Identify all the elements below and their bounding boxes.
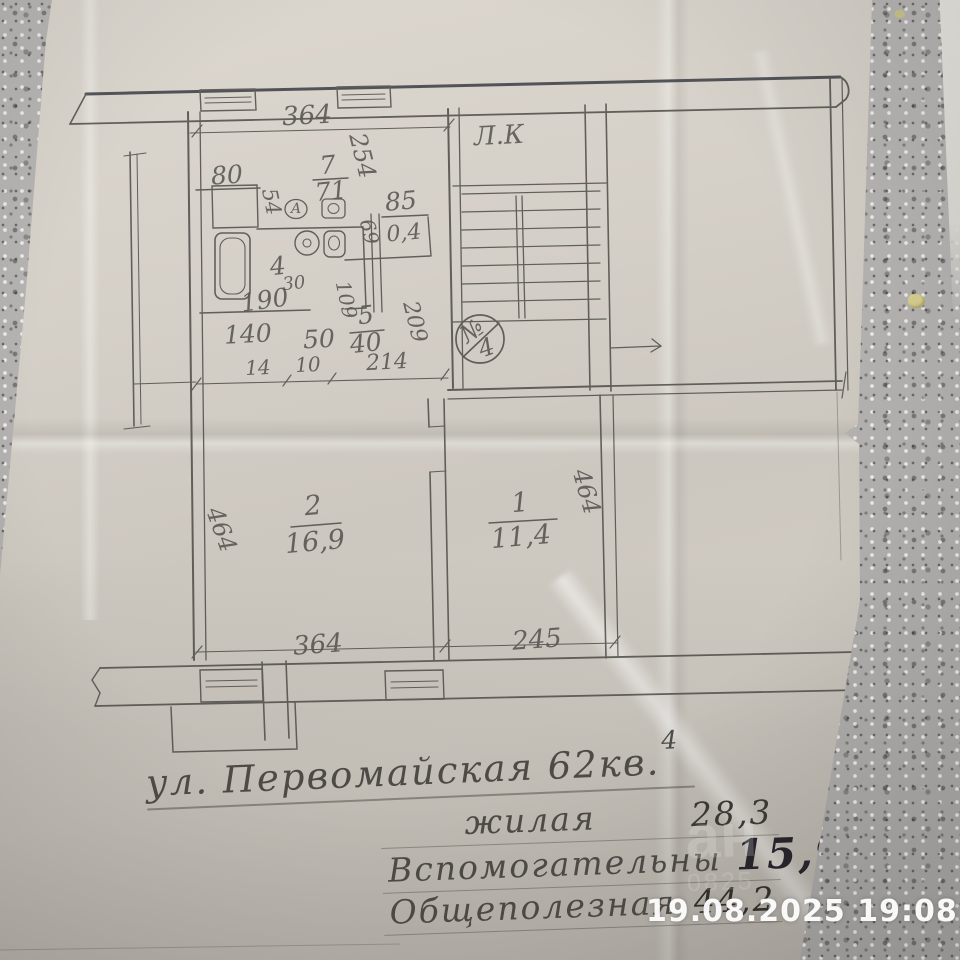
plan-label: 85 [384, 185, 418, 217]
plan-label: 190 [239, 282, 290, 317]
plan-label: 364 [292, 628, 344, 661]
plan-label: 10 [295, 352, 322, 377]
plan-label: 245 [510, 623, 563, 656]
plan-label: 209 [397, 298, 432, 346]
plan-label: А [290, 201, 302, 217]
plan-label: 1 [510, 487, 530, 519]
plan-label: 0,4 [385, 220, 422, 248]
paint-chip [908, 294, 925, 308]
summary-label: жилая [464, 799, 597, 842]
plan-label: 14 [245, 355, 272, 380]
apartment-number-superscript: 4 [661, 725, 680, 755]
summary-label: Общеполезная [389, 884, 677, 933]
plan-label: 2 [302, 490, 323, 522]
plan-label: Л.К [471, 120, 525, 153]
plan-label: 54 [257, 186, 286, 217]
plan-label: 50 [302, 324, 335, 355]
plan-label: 140 [223, 318, 272, 349]
plan-label: 4 [474, 332, 499, 364]
plan-label: 80 [210, 159, 244, 190]
paint-chip [895, 10, 905, 18]
plan-label: 16,9 [284, 524, 347, 560]
plan-label: 11,4 [490, 519, 553, 555]
plan-label: 71 [313, 175, 348, 207]
plan-label: 214 [364, 349, 408, 376]
camera-timestamp: 19.08.2025 19:08 [646, 894, 946, 929]
photo-of-floor-plan: 364805477125485690,4А4301901405054010920… [0, 0, 960, 960]
interior-partitions [134, 127, 618, 652]
plan-label: 464 [566, 465, 606, 518]
blueprint-paper-sheet: 364805477125485690,4А4301901405054010920… [0, 0, 960, 960]
plan-label: 109 [331, 279, 362, 322]
plan-label: 364 [281, 100, 332, 133]
plan-label: 464 [200, 502, 242, 556]
plan-label: 254 [343, 129, 381, 181]
